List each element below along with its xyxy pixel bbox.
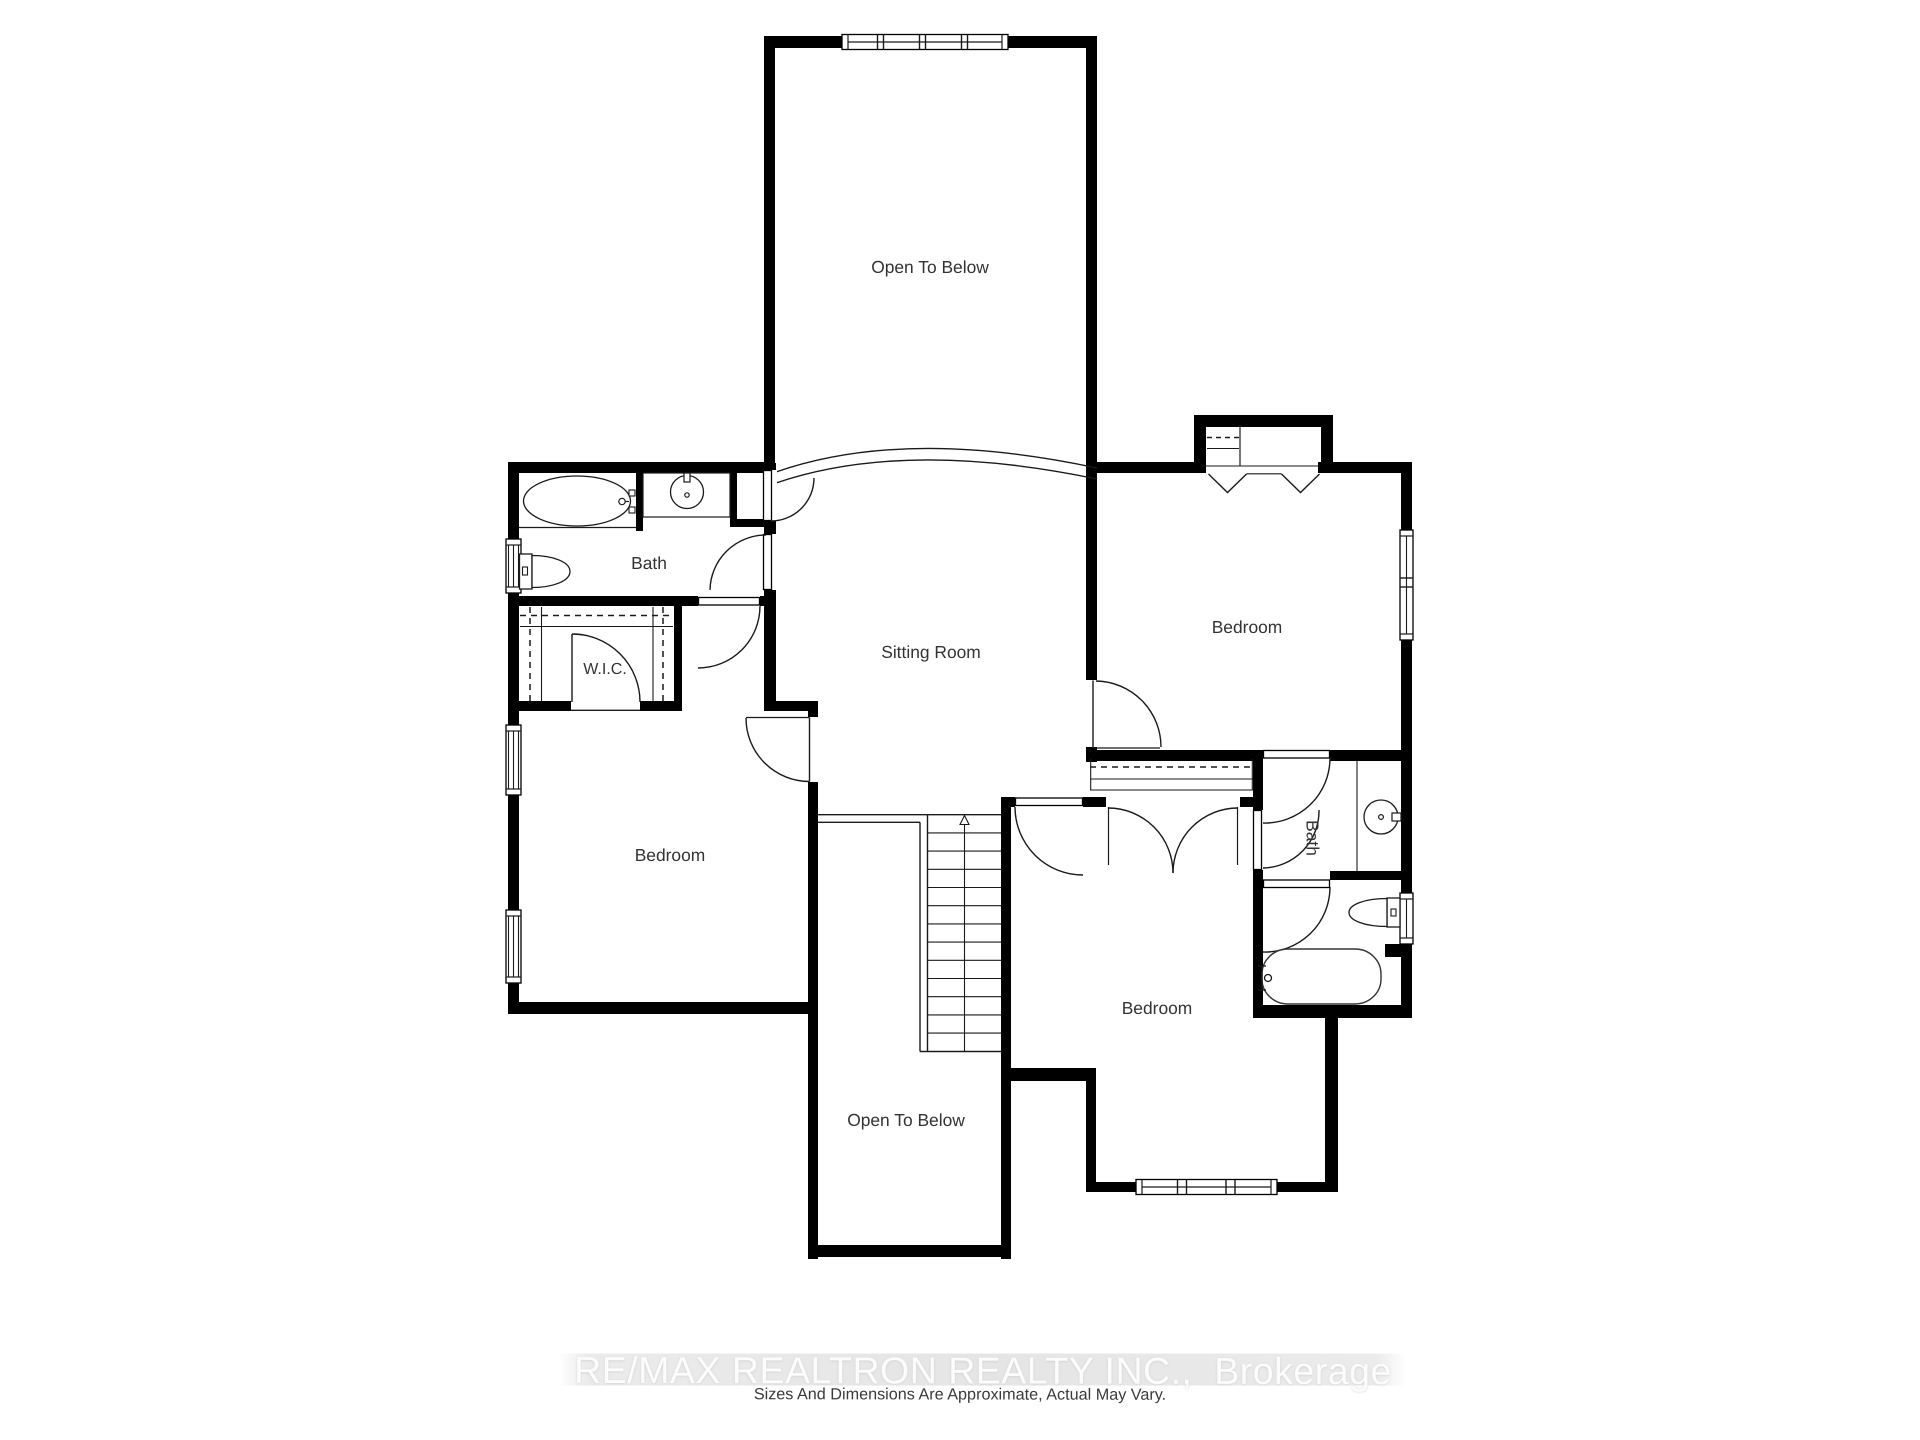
svg-text:W.I.C.: W.I.C. [583,661,627,678]
svg-text:Bedroom: Bedroom [635,845,706,865]
svg-text:Sitting Room: Sitting Room [881,642,981,662]
svg-text:Sizes And Dimensions Are Appro: Sizes And Dimensions Are Approximate, Ac… [754,1385,1166,1404]
svg-text:Open To Below: Open To Below [847,1110,965,1130]
svg-text:Bath: Bath [631,553,667,573]
svg-text:Bath: Bath [1303,820,1323,856]
svg-text:Bedroom: Bedroom [1212,617,1283,637]
svg-text:Bedroom: Bedroom [1122,998,1193,1018]
svg-text:Open To Below: Open To Below [871,257,989,277]
